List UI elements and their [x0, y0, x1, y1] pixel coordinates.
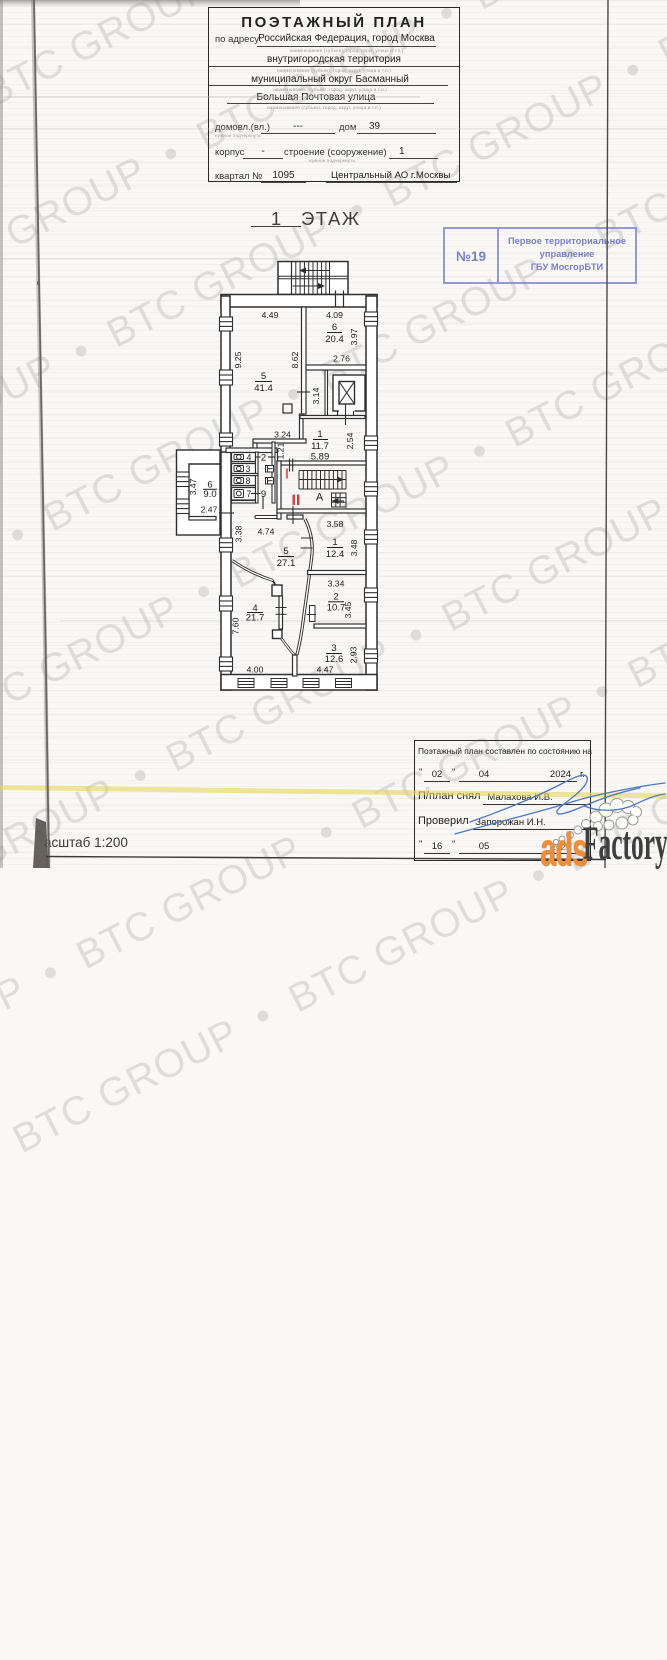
- svg-text:3.14: 3.14: [311, 387, 321, 404]
- svg-text:9: 9: [261, 489, 266, 500]
- svg-text:27.1: 27.1: [277, 558, 296, 569]
- svg-text:4.47: 4.47: [317, 665, 334, 675]
- svg-text:3.58: 3.58: [327, 519, 344, 529]
- svg-text:12.4: 12.4: [326, 549, 345, 560]
- svg-text:2.76: 2.76: [333, 354, 350, 364]
- svg-text:3.48: 3.48: [349, 539, 359, 556]
- svg-text:3: 3: [246, 464, 251, 474]
- svg-text:5.89: 5.89: [311, 452, 330, 463]
- svg-text:9.0: 9.0: [203, 489, 216, 500]
- svg-text:1.21: 1.21: [276, 442, 286, 459]
- svg-text:А: А: [316, 492, 324, 504]
- svg-text:2.47: 2.47: [201, 505, 218, 515]
- svg-text:3: 3: [331, 643, 336, 654]
- svg-text:3.47: 3.47: [188, 478, 198, 495]
- svg-text:2.93: 2.93: [349, 646, 359, 663]
- svg-text:1: 1: [317, 429, 322, 440]
- svg-text:8: 8: [246, 476, 251, 486]
- svg-text:20.4: 20.4: [325, 334, 344, 345]
- svg-text:4.49: 4.49: [262, 310, 279, 320]
- svg-text:41.4: 41.4: [254, 383, 273, 394]
- svg-text:7: 7: [247, 489, 252, 499]
- svg-text:3.24: 3.24: [274, 430, 291, 440]
- svg-text:3.97: 3.97: [349, 328, 359, 345]
- svg-text:3.34: 3.34: [328, 579, 345, 589]
- svg-text:11.7: 11.7: [311, 441, 329, 452]
- svg-text:4.09: 4.09: [326, 310, 343, 320]
- svg-text:12.6: 12.6: [325, 654, 344, 665]
- svg-text:4.00: 4.00: [247, 665, 264, 675]
- svg-text:5: 5: [261, 371, 266, 382]
- svg-text:4: 4: [247, 453, 252, 463]
- svg-text:21.7: 21.7: [246, 613, 265, 624]
- svg-text:2: 2: [261, 453, 266, 464]
- svg-text:7.60: 7.60: [231, 617, 241, 634]
- svg-text:3.38: 3.38: [234, 525, 244, 542]
- svg-text:6: 6: [332, 322, 337, 333]
- svg-text:4.74: 4.74: [258, 527, 275, 537]
- svg-text:10.7: 10.7: [327, 603, 346, 614]
- svg-text:8.62: 8.62: [290, 351, 300, 368]
- svg-text:1: 1: [332, 537, 337, 548]
- svg-text:5: 5: [283, 546, 288, 557]
- svg-text:9.25: 9.25: [233, 351, 243, 368]
- svg-text:2.54: 2.54: [345, 432, 355, 449]
- svg-text:2: 2: [333, 592, 338, 603]
